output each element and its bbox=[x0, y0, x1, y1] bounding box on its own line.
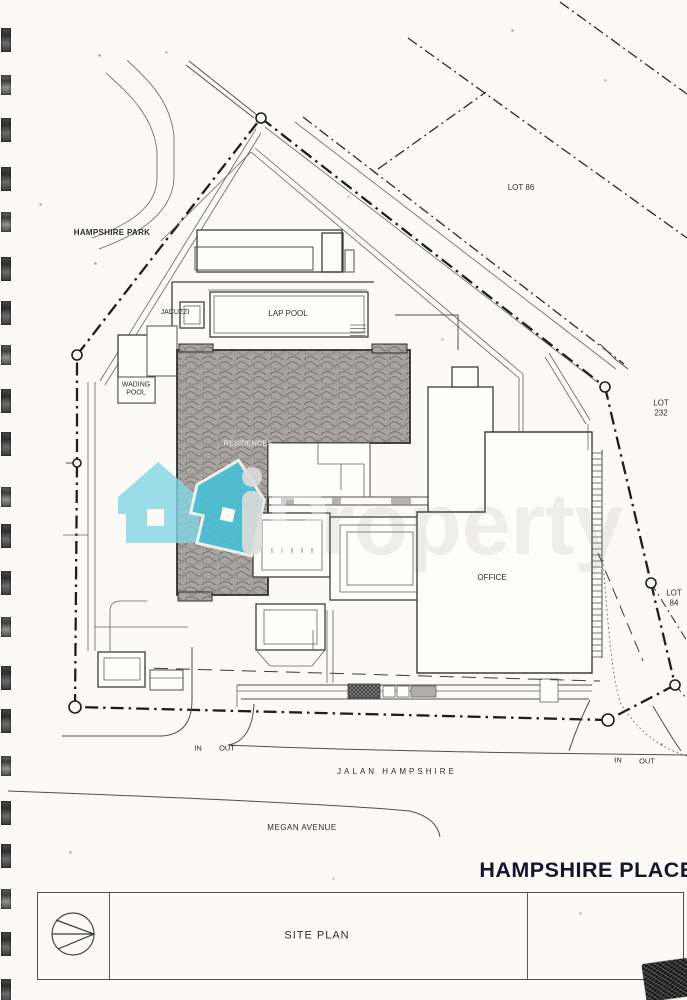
label-lot-232: LOT 232 bbox=[653, 398, 669, 417]
road-edge-nw bbox=[189, 61, 257, 115]
scanned-site-plan-page: P roperty HAMPSHIRE PARK LOT 86 LOT 232 … bbox=[0, 0, 687, 1000]
site-plan-drawing: P roperty bbox=[0, 0, 687, 1000]
label-wading-pool: WADING POOL bbox=[122, 382, 151, 399]
north-arrow-icon bbox=[46, 908, 100, 960]
page-title: HAMPSHIRE PLACE bbox=[479, 858, 687, 884]
label-lot-84: LOT 84 bbox=[666, 588, 682, 607]
title-block-divider-2 bbox=[527, 893, 528, 979]
label-lot-86: LOT 86 bbox=[508, 183, 535, 193]
watermark-letter-i-dot bbox=[242, 467, 262, 487]
label-out-west: OUT bbox=[219, 744, 235, 753]
label-hampshire-park: HAMPSHIRE PARK bbox=[74, 228, 151, 238]
label-in-west: IN bbox=[194, 744, 202, 753]
label-lap-pool: LAP POOL bbox=[268, 309, 307, 319]
pool-plant-room bbox=[147, 326, 177, 376]
road-edge-nw-2 bbox=[186, 65, 254, 118]
label-jacuzzi: JACUZZI bbox=[161, 309, 190, 317]
guard-house bbox=[348, 684, 380, 698]
label-office: OFFICE bbox=[477, 573, 506, 583]
title-block-divider-1 bbox=[109, 893, 110, 979]
label-residences: RESIDENCES bbox=[224, 439, 273, 448]
drawing-title: SITE PLAN bbox=[284, 929, 349, 942]
label-megan-avenue: MEGAN AVENUE bbox=[267, 823, 336, 833]
watermark-ghost-letters: roperty bbox=[320, 474, 623, 573]
label-lot-84-line2: 84 bbox=[666, 598, 682, 608]
west-entrance-structures bbox=[98, 652, 183, 690]
hampshire-park-road-curves bbox=[92, 60, 174, 249]
label-wading-line2: POOL bbox=[122, 390, 151, 398]
label-lot-232-line1: LOT bbox=[653, 398, 669, 408]
jalan-hampshire-south-edge bbox=[8, 791, 440, 837]
label-out-east: OUT bbox=[639, 757, 655, 766]
title-block bbox=[37, 892, 684, 980]
label-lot-232-line2: 232 bbox=[653, 408, 669, 418]
label-jalan-hampshire: JALAN HAMPSHIRE bbox=[337, 767, 457, 777]
label-lot-84-line1: LOT bbox=[666, 588, 682, 598]
label-wading-line1: WADING bbox=[122, 382, 151, 390]
long-building bbox=[195, 230, 354, 272]
watermark-letter-i-stem bbox=[242, 491, 262, 555]
driveways bbox=[62, 647, 687, 755]
ink-stamp bbox=[642, 958, 687, 1000]
label-in-east: IN bbox=[614, 756, 622, 765]
